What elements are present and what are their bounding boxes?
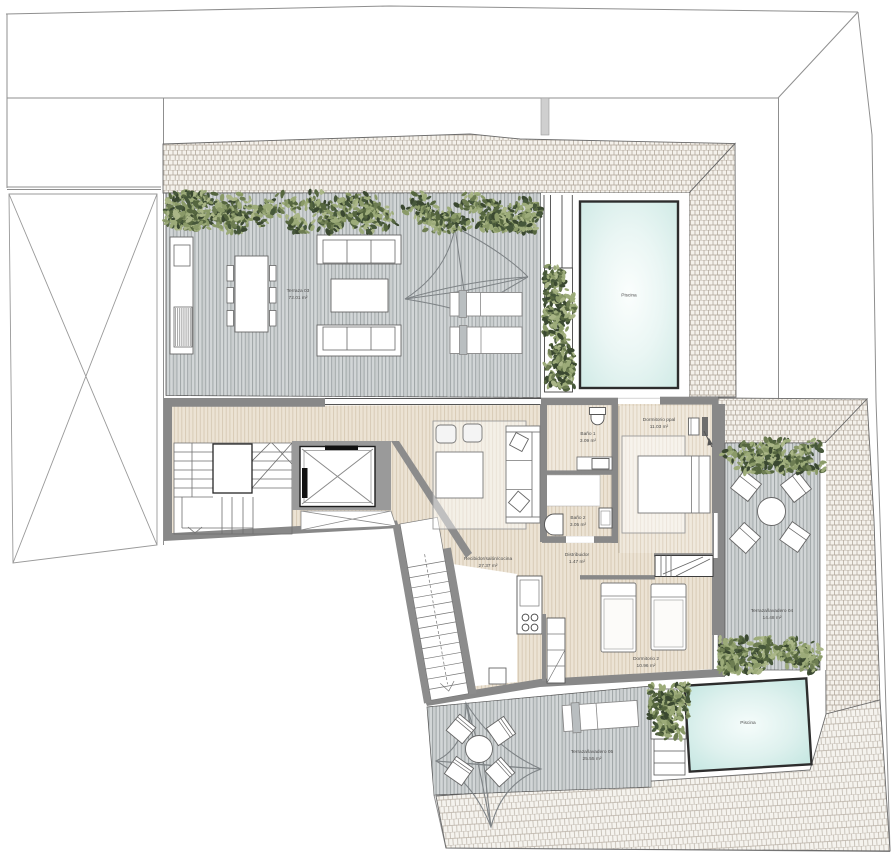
svg-text:Piscina: Piscina <box>621 293 637 299</box>
svg-text:Piscina: Piscina <box>740 720 756 726</box>
